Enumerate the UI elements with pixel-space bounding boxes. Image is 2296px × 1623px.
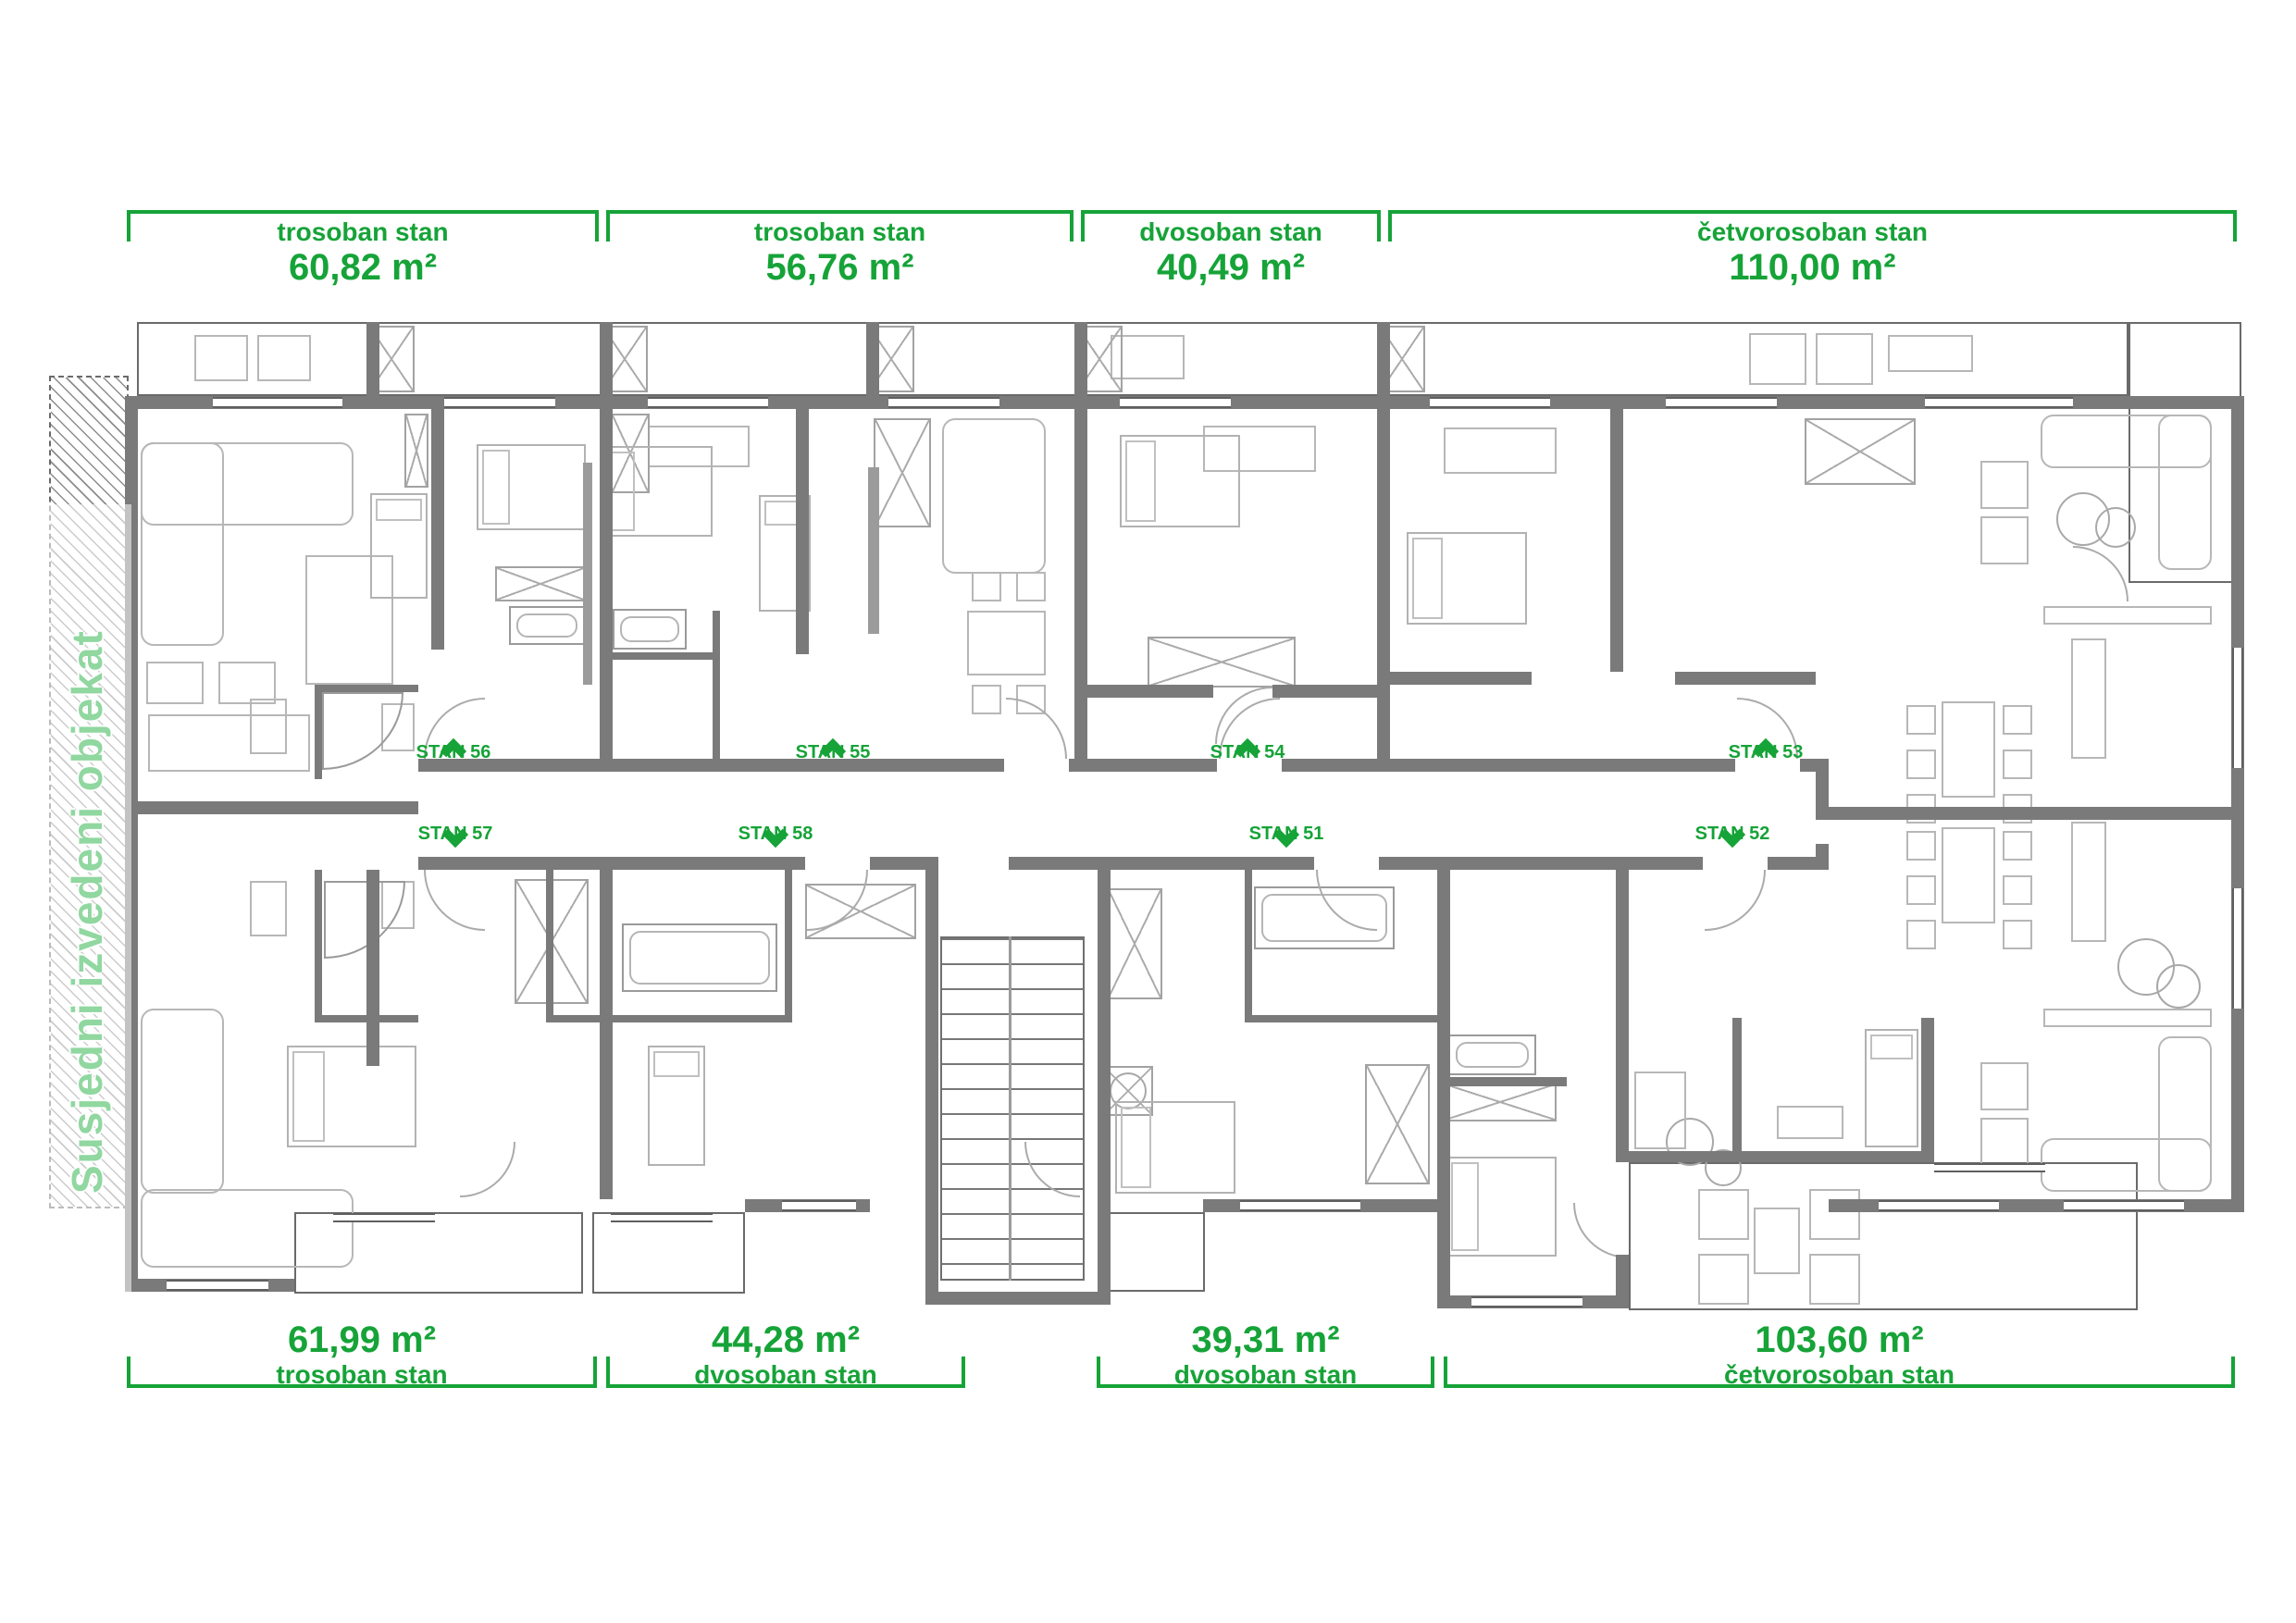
unit-area: 61,99 m² <box>127 1321 597 1358</box>
unit-label-bot-3: dvosoban stan39,31 m² <box>1097 1318 1434 1395</box>
unit-label-bot-2: dvosoban stan44,28 m² <box>606 1318 965 1395</box>
unit-type: dvosoban stan <box>1097 1362 1434 1388</box>
unit-type: dvosoban stan <box>1081 219 1381 245</box>
stan-tag-label: STAN 55 <box>796 742 871 762</box>
unit-area: 40,49 m² <box>1081 249 1381 286</box>
unit-type: trosoban stan <box>127 1362 597 1388</box>
unit-type: trosoban stan <box>127 219 599 245</box>
floorplan-page: Susjedni izvedeni objekat trosoban stan6… <box>0 0 2296 1623</box>
stan-tag-label: STAN 53 <box>1729 742 1804 762</box>
unit-label-top-1: trosoban stan60,82 m² <box>127 210 599 288</box>
unit-label-top-2: trosoban stan56,76 m² <box>606 210 1074 288</box>
unit-area: 56,76 m² <box>606 249 1074 286</box>
unit-area: 44,28 m² <box>606 1321 965 1358</box>
unit-type: četvorosoban stan <box>1444 1362 2235 1388</box>
unit-label-bot-1: trosoban stan61,99 m² <box>127 1318 597 1395</box>
stan-tag-label: STAN 56 <box>416 742 491 762</box>
unit-area: 103,60 m² <box>1444 1321 2235 1358</box>
unit-type: četvorosoban stan <box>1388 219 2237 245</box>
unit-label-bot-4: četvorosoban stan103,60 m² <box>1444 1318 2235 1395</box>
unit-label-top-4: četvorosoban stan110,00 m² <box>1388 210 2237 288</box>
stan-tag-label: STAN 54 <box>1210 742 1285 762</box>
unit-label-top-3: dvosoban stan40,49 m² <box>1081 210 1381 288</box>
unit-type: trosoban stan <box>606 219 1074 245</box>
annotation-layer: trosoban stan60,82 m²trosoban stan56,76 … <box>0 0 2296 1623</box>
unit-area: 110,00 m² <box>1388 249 2237 286</box>
unit-area: 60,82 m² <box>127 249 599 286</box>
unit-area: 39,31 m² <box>1097 1321 1434 1358</box>
unit-type: dvosoban stan <box>606 1362 965 1388</box>
